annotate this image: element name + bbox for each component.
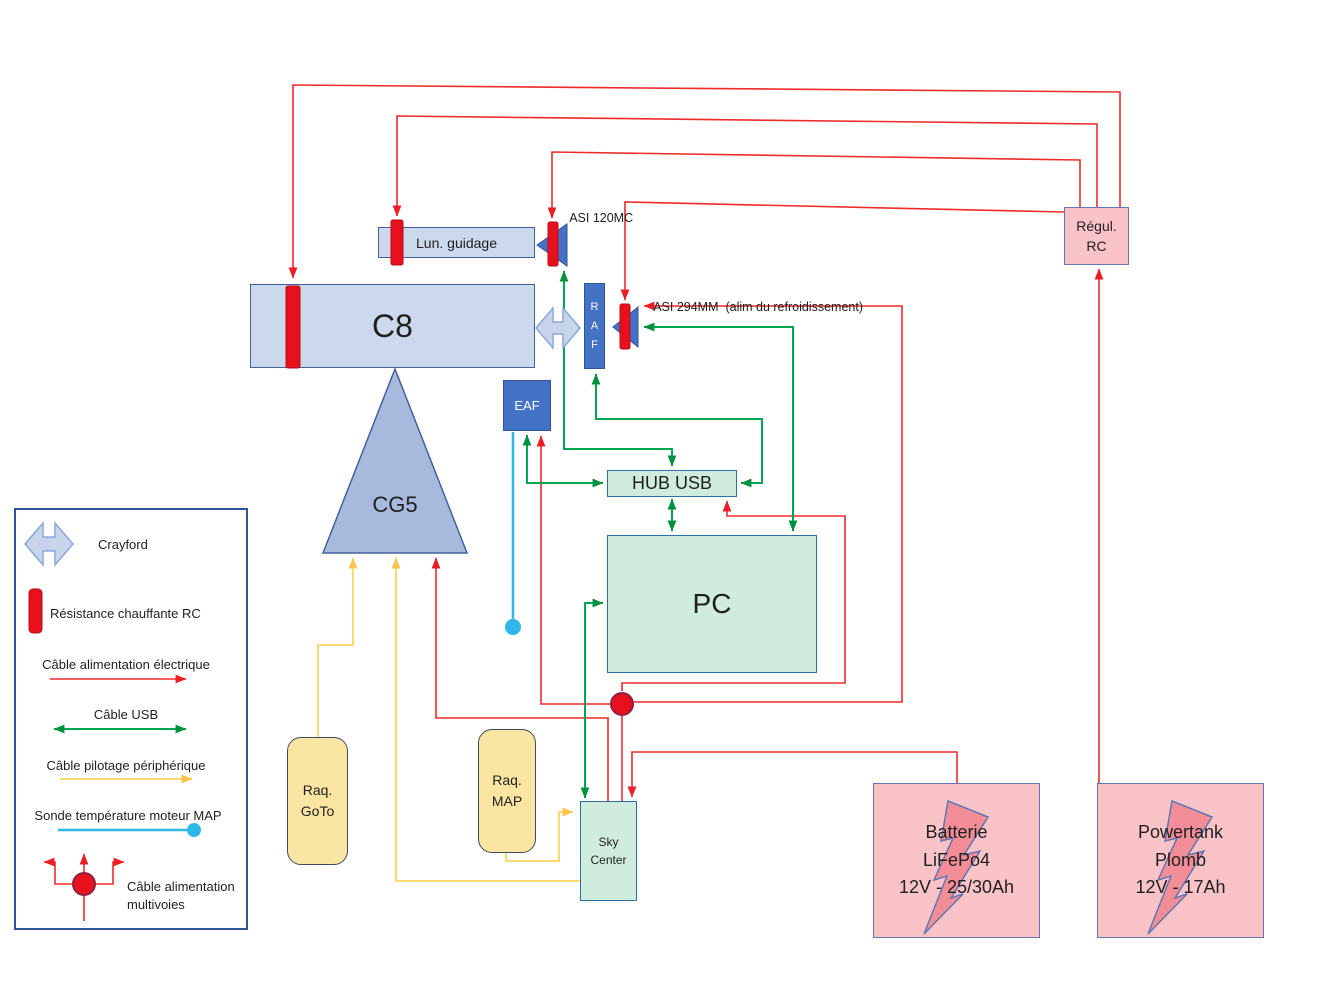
legend-crayford-icon: [25, 523, 73, 565]
crayford-focuser-icon: [536, 308, 580, 348]
heater-band-c8: [286, 286, 300, 368]
legend-probe-tip-icon: [187, 823, 201, 837]
heater-band-guidescope: [391, 220, 403, 265]
temp-probe-tip: [505, 619, 521, 635]
heater-band-asi294: [620, 304, 630, 349]
legend-multivoies-node-icon: [73, 873, 95, 895]
legend-heater-icon: [29, 589, 42, 633]
power-splitter-node: [611, 693, 633, 715]
shapes-layer: [0, 0, 1344, 1008]
heater-band-asi120: [548, 222, 558, 266]
astro-wiring-diagram: C8 Lun. guidage R A F EAF CG5 HUB USB PC…: [0, 0, 1344, 1008]
